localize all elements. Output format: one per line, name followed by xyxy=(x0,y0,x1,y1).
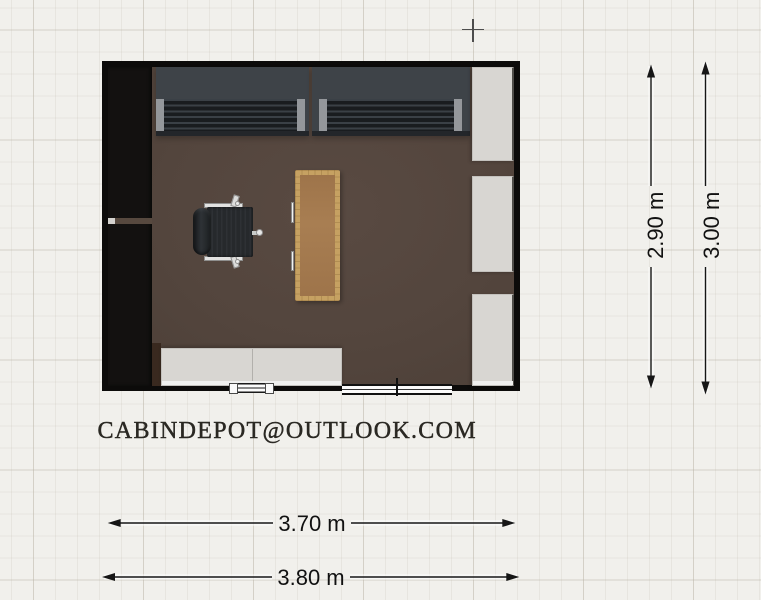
svg-text:2.90 m: 2.90 m xyxy=(643,192,668,259)
svg-text:3.70 m: 3.70 m xyxy=(278,511,345,536)
svg-text:3.00 m: 3.00 m xyxy=(699,192,724,259)
svg-text:3.80 m: 3.80 m xyxy=(277,565,344,590)
